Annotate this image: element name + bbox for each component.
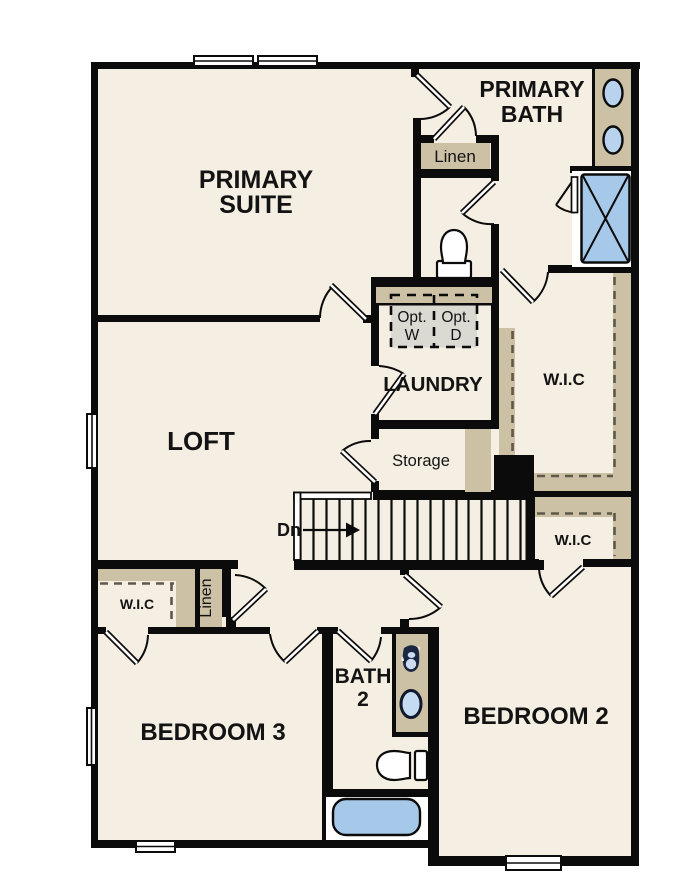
svg-text:LOFT: LOFT bbox=[167, 426, 235, 456]
svg-text:LAUNDRY: LAUNDRY bbox=[383, 373, 483, 396]
svg-text:Storage: Storage bbox=[392, 452, 450, 470]
svg-text:W.I.C: W.I.C bbox=[555, 532, 592, 549]
svg-text:Opt.: Opt. bbox=[441, 309, 470, 326]
svg-text:D: D bbox=[450, 327, 461, 344]
svg-text:Linen: Linen bbox=[434, 147, 476, 166]
svg-text:BEDROOM 3: BEDROOM 3 bbox=[140, 719, 285, 746]
svg-text:W.I.C: W.I.C bbox=[543, 370, 585, 389]
svg-text:Opt.: Opt. bbox=[397, 309, 426, 326]
svg-text:Linen: Linen bbox=[198, 578, 215, 617]
svg-text:BATH: BATH bbox=[335, 665, 392, 688]
svg-text:SUITE: SUITE bbox=[219, 191, 293, 219]
svg-text:Dn: Dn bbox=[277, 520, 301, 540]
svg-text:W: W bbox=[405, 327, 420, 344]
svg-text:2: 2 bbox=[357, 688, 369, 711]
svg-text:BEDROOM 2: BEDROOM 2 bbox=[463, 703, 608, 730]
svg-text:BATH: BATH bbox=[501, 101, 563, 127]
svg-text:W.I.C: W.I.C bbox=[120, 596, 154, 612]
svg-text:PRIMARY: PRIMARY bbox=[199, 166, 314, 194]
svg-text:PRIMARY: PRIMARY bbox=[479, 76, 584, 102]
